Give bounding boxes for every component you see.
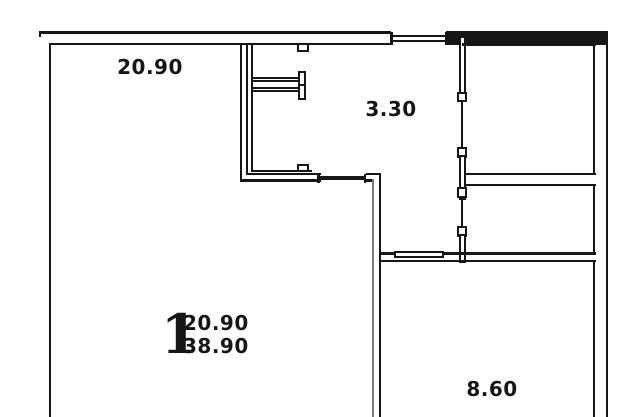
window-line-lower (392, 40, 446, 42)
room-midright-right (593, 184, 595, 255)
kitchen-door-bar (394, 251, 445, 258)
door1-opening-line (461, 101, 463, 149)
floor-plan-canvas: 20.90 3.30 8.60 1 20.90 38.90 (0, 0, 640, 417)
room-midright-bottom (464, 252, 596, 254)
closet-bottom-jamb-top (297, 164, 309, 166)
window-line-upper (392, 35, 446, 37)
hall-bottom-wall-outer (240, 179, 321, 182)
room-topright-right (593, 43, 595, 175)
closet-bottom-wall (251, 170, 312, 172)
wall-top-inner (49, 43, 392, 45)
closet-shelf2-bottom (251, 90, 298, 92)
room-topright-top (462, 43, 596, 45)
living-right-wall-outer (240, 43, 242, 182)
window-cap-left (390, 32, 393, 45)
closet-left-wall (251, 45, 253, 172)
kitchen-top (379, 260, 596, 262)
hallway-area-label: 3.30 (362, 97, 420, 121)
living-doorway-bar (319, 176, 365, 180)
closet-shelf2-jamb (298, 84, 307, 100)
living-room-area-label: 20.90 (110, 55, 190, 79)
closet-shelf1-top (251, 77, 298, 79)
stamp-total-area: 38.90 (183, 335, 249, 358)
closet-top-jamb-base (297, 50, 309, 52)
closet-shelf2-top (251, 87, 298, 89)
kitchen-right (593, 260, 595, 417)
room-midright-top (464, 184, 596, 186)
kitchen-doorwall-left (381, 252, 394, 254)
living-kitchen-wall-left (372, 179, 374, 417)
hall-bottom-wall-inner (246, 173, 321, 175)
wall-top-left-tick (39, 31, 41, 37)
living-right-wall-inner (246, 43, 248, 176)
living-kitchen-wall-right (379, 175, 381, 417)
wall-left-outer (49, 43, 51, 417)
hall-right-wall-seg3 (459, 234, 466, 263)
closet-shelf1-bottom (251, 80, 298, 82)
stamp-living-area: 20.90 (183, 312, 249, 335)
hall-right-wall-seg1 (459, 36, 466, 101)
room-topright-bottom (464, 173, 596, 175)
wall-right-outer (606, 31, 608, 417)
door2-opening-line (461, 198, 463, 229)
wall-top-outer (39, 31, 391, 34)
stamp-areas: 20.90 38.90 (183, 312, 249, 357)
kitchen-area-label: 8.60 (461, 377, 523, 401)
kitchen-doorwall-right (444, 252, 465, 254)
door2-jamb-top (457, 187, 467, 198)
